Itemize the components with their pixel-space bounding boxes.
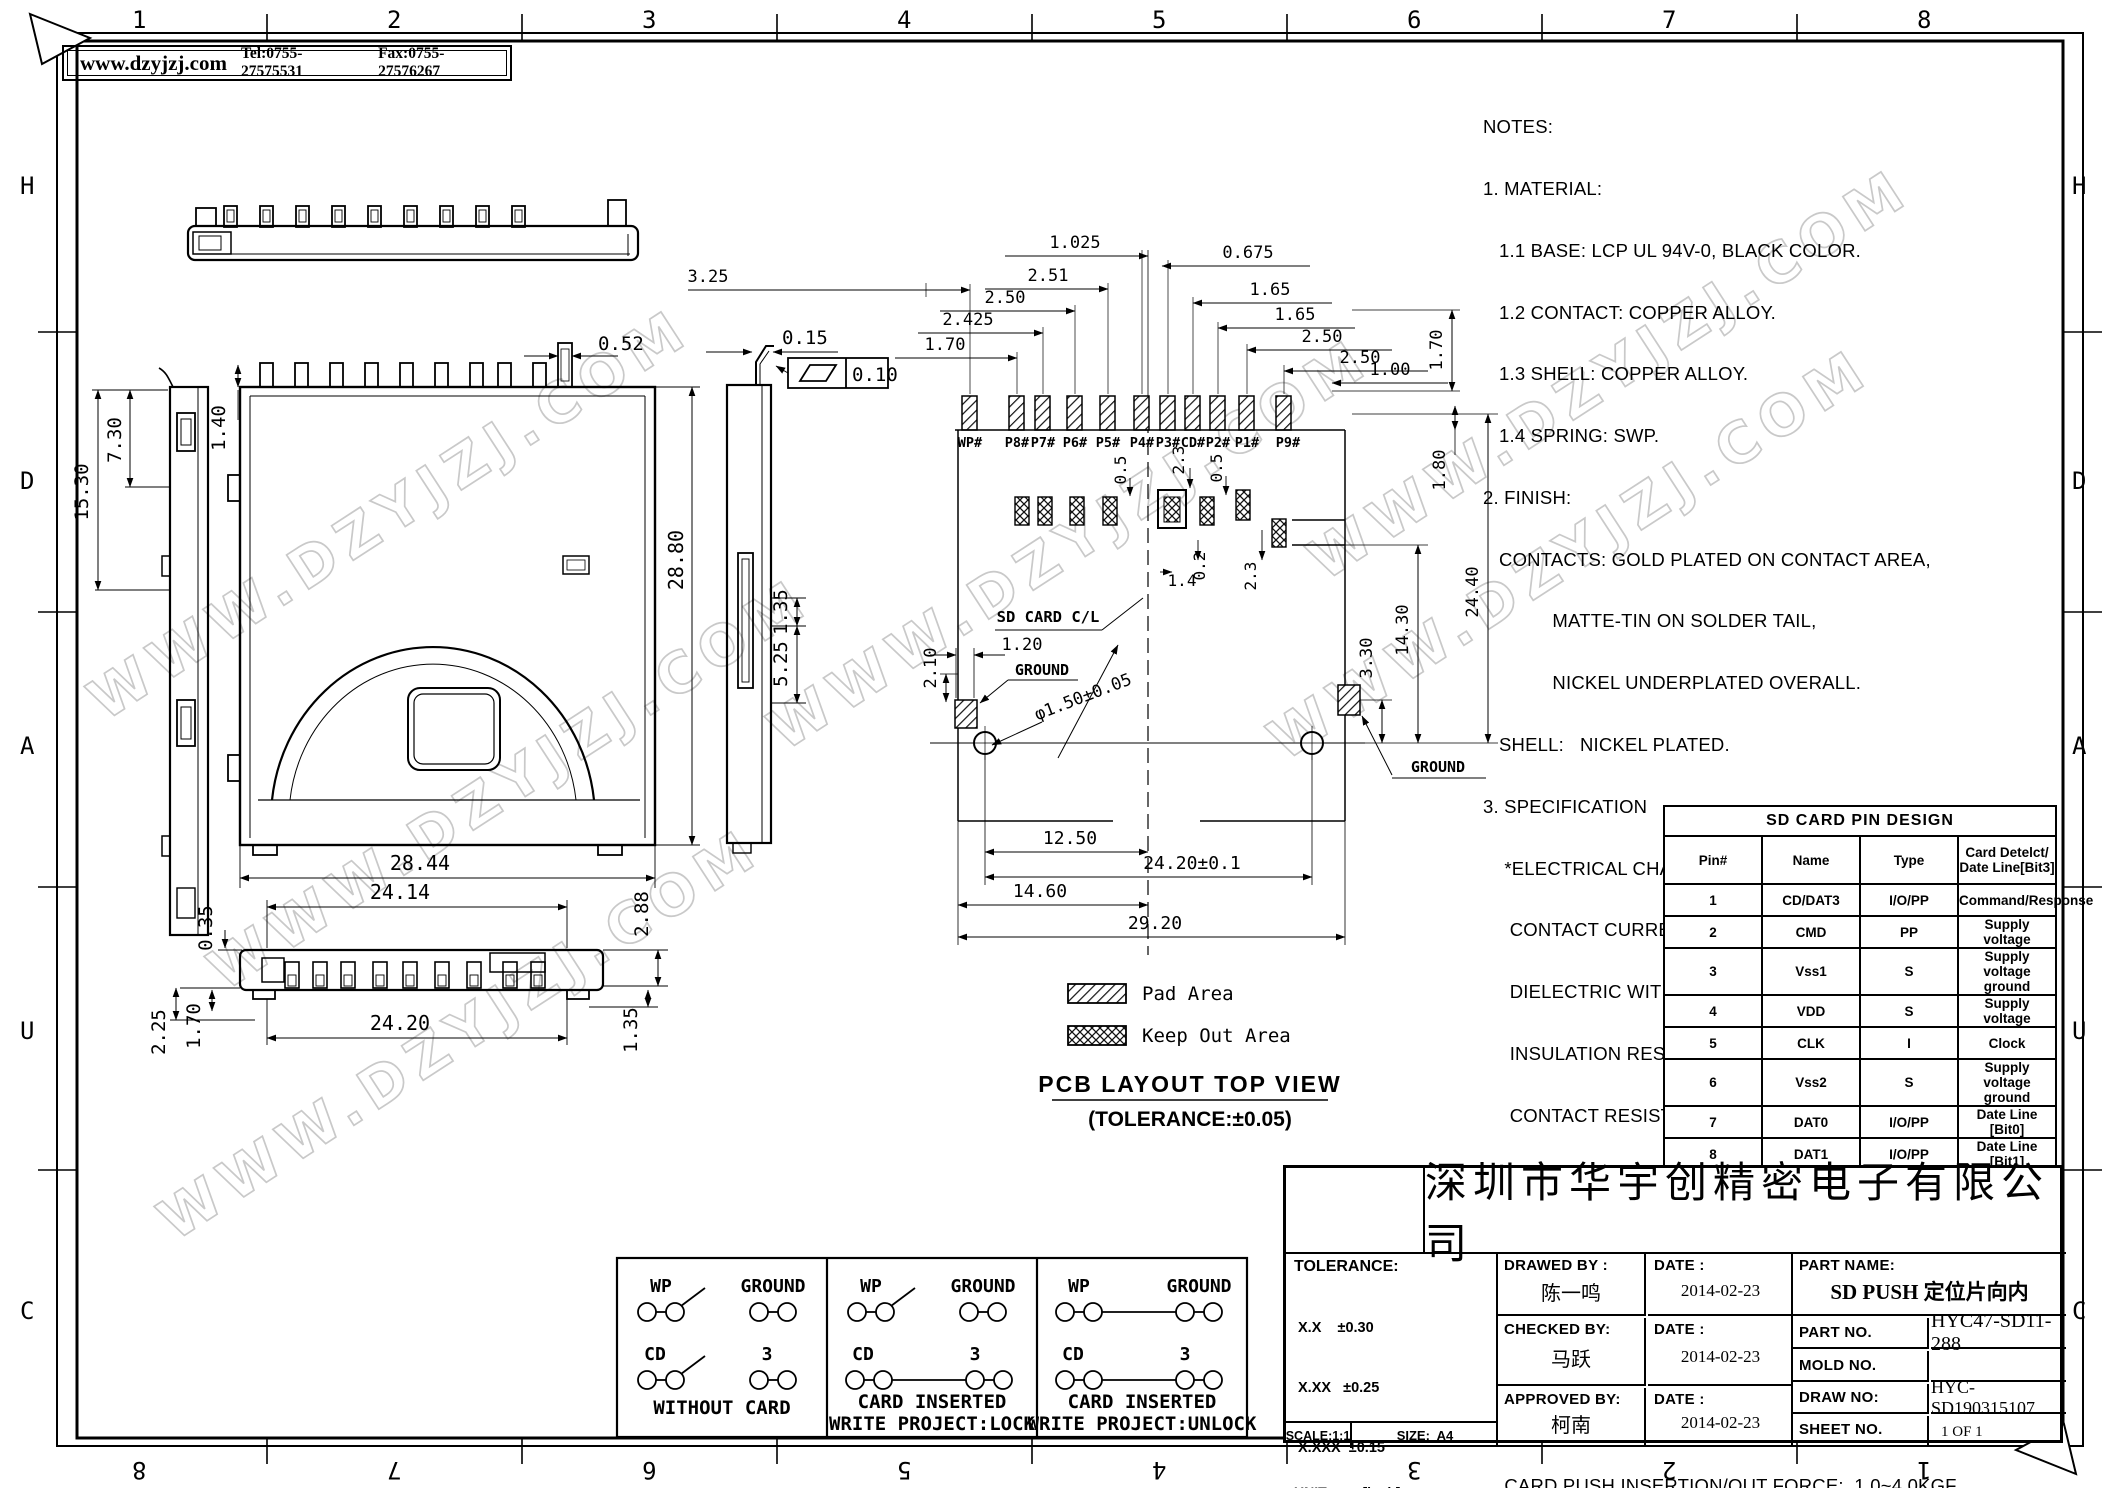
pin-number: 7 bbox=[1664, 1106, 1762, 1138]
pin-type: I bbox=[1860, 1027, 1958, 1059]
telephone: Tel:0755-27575531 bbox=[241, 45, 364, 81]
pin-number: 2 bbox=[1664, 916, 1762, 948]
dim-1-00: 1.00 bbox=[1370, 360, 1411, 380]
dim-7-30: 7.30 bbox=[104, 417, 126, 463]
zone-row: U bbox=[2072, 1017, 2086, 1045]
switch-caption: WITHOUT CARD bbox=[653, 1397, 790, 1419]
scale-row: SCALE:1:1 SIZE: A4 bbox=[1286, 1421, 1498, 1446]
pin-label: P2# bbox=[1206, 435, 1231, 451]
pin-name: DAT0 bbox=[1762, 1106, 1860, 1138]
note-line: CONTACTS: GOLD PLATED ON CONTACT AREA, bbox=[1483, 550, 2005, 571]
note-line: SHELL: NICKEL PLATED. bbox=[1483, 735, 2005, 756]
pin-type: S bbox=[1860, 948, 1958, 995]
pin-number: 6 bbox=[1664, 1059, 1762, 1106]
zone-col: 2 bbox=[387, 6, 401, 34]
dim-0-52: 0.52 bbox=[598, 333, 644, 355]
note-line: NOTES: bbox=[1483, 117, 2005, 138]
switch-cd-label: CD bbox=[644, 1344, 666, 1365]
pictorial-view bbox=[188, 200, 638, 260]
dim-0-35: 0.35 bbox=[195, 905, 217, 951]
dim-1-40: 1.40 bbox=[208, 405, 230, 451]
zone-row: U bbox=[20, 1017, 34, 1045]
zone-row: H bbox=[2072, 172, 2086, 200]
sheet-no-value: 1 OF 1 bbox=[1931, 1416, 2066, 1446]
date-label: DATE : bbox=[1648, 1388, 1793, 1408]
dim-0-5-a: 0.5 bbox=[1111, 456, 1130, 485]
dim-2-3-b: 2.3 bbox=[1241, 562, 1260, 591]
zone-col: 7 bbox=[387, 1456, 401, 1484]
dim-12-50: 12.50 bbox=[1043, 828, 1097, 849]
dim-5-25: 5.25 bbox=[770, 641, 792, 687]
dim-2-10: 2.10 bbox=[921, 648, 941, 689]
dim-1-20: 1.20 bbox=[1002, 635, 1043, 655]
draw-no-label: DRAW NO: bbox=[1793, 1384, 1927, 1406]
zone-col: 4 bbox=[897, 6, 911, 34]
zone-col: 5 bbox=[1152, 6, 1166, 34]
pin-label: P1# bbox=[1235, 435, 1260, 451]
dim-2-50-a: 2.50 bbox=[985, 288, 1026, 308]
note-line: 2. FINISH: bbox=[1483, 488, 2005, 509]
zone-col: 6 bbox=[1407, 6, 1421, 34]
dim-1-80: 1.80 bbox=[1430, 450, 1450, 491]
dim-14-30: 14.30 bbox=[1393, 604, 1413, 655]
zone-row: A bbox=[2072, 732, 2086, 760]
tolerance-line: X.XX ±0.25 bbox=[1298, 1378, 1496, 1398]
pcb-view-title: PCB LAYOUT TOP VIEW bbox=[1038, 1071, 1341, 1097]
dim-1-35-front: 1.35 bbox=[620, 1007, 642, 1053]
pin-table-header: Pin# bbox=[1664, 836, 1762, 884]
pin-desc: Supply voltage ground bbox=[1958, 1059, 2056, 1106]
pin-name: Vss1 bbox=[1762, 948, 1860, 995]
switch-wp-label: WP bbox=[860, 1276, 882, 1297]
zone-row: H bbox=[20, 172, 34, 200]
sd-card-cl-label: SD CARD C/L bbox=[997, 608, 1100, 626]
note-line: NICKEL UNDERPLATED OVERALL. bbox=[1483, 673, 2005, 694]
pin-label: P8# bbox=[1005, 435, 1030, 451]
dim-1-4: 1.4 bbox=[1168, 571, 1197, 590]
website-url[interactable]: www.dzyjzj.com bbox=[80, 51, 227, 76]
legend-pad-area: Pad Area bbox=[1142, 983, 1234, 1005]
drawed-date: 2014-02-23 bbox=[1648, 1274, 1793, 1308]
switch-caption: CARD INSERTED bbox=[858, 1391, 1007, 1413]
approved-date: 2014-02-23 bbox=[1648, 1408, 1793, 1438]
pin-name: Vss2 bbox=[1762, 1059, 1860, 1106]
mold-no-label: MOLD NO. bbox=[1793, 1351, 1927, 1374]
unit-label: UNIT: mm [inch] bbox=[1286, 1484, 1506, 1488]
dim-3-25: 3.25 bbox=[688, 267, 729, 287]
switch-3-label: 3 bbox=[762, 1344, 773, 1365]
flatness-value: 0.10 bbox=[852, 364, 898, 386]
note-line: 1.4 SPRING: SWP. bbox=[1483, 426, 2005, 447]
pin-table-header: Card Detelct/ Date Line[Bit3] bbox=[1958, 836, 2056, 884]
dim-24-20-tol: 24.20±0.1 bbox=[1143, 853, 1241, 874]
part-name-value: SD PUSH 定位片向内 bbox=[1793, 1274, 2066, 1308]
zone-row: D bbox=[20, 467, 34, 495]
part-no-value: HYC47-SD11-288 bbox=[1931, 1318, 2066, 1349]
zone-col: 1 bbox=[132, 6, 146, 34]
company-name: 深圳市华宇创精密电子有限公司 bbox=[1425, 1168, 2066, 1254]
pin-label: P6# bbox=[1063, 435, 1088, 451]
switch-ground-label: GROUND bbox=[740, 1276, 805, 1297]
logo-cell bbox=[1286, 1168, 1425, 1254]
zone-row: C bbox=[20, 1297, 34, 1325]
sheet-no-label: SHEET NO. bbox=[1793, 1416, 1927, 1438]
pin-label: P5# bbox=[1096, 435, 1121, 451]
tolerance-line: X.X ±0.30 bbox=[1298, 1318, 1496, 1338]
scale-value: SCALE:1:1 bbox=[1286, 1423, 1352, 1448]
zone-col: 6 bbox=[642, 1456, 656, 1484]
switch-3-label: 3 bbox=[1180, 1344, 1191, 1365]
pin-label: P4# bbox=[1130, 435, 1155, 451]
pin-label: P9# bbox=[1276, 435, 1301, 451]
dim-1-35: 1.35 bbox=[770, 589, 792, 635]
pin-table-header: Type bbox=[1860, 836, 1958, 884]
watermark-text: WWW.DZYJZJ.COM bbox=[147, 816, 773, 1254]
dim-0-15: 0.15 bbox=[782, 327, 828, 349]
pin-name: CLK bbox=[1762, 1027, 1860, 1059]
dim-28-44: 28.44 bbox=[390, 851, 450, 875]
ground-label-left: GROUND bbox=[1015, 661, 1069, 679]
legend-keep-out-area: Keep Out Area bbox=[1142, 1025, 1291, 1047]
pin-number: 3 bbox=[1664, 948, 1762, 995]
switch-cd-label: CD bbox=[852, 1344, 874, 1365]
pin-type: S bbox=[1860, 1059, 1958, 1106]
switch-wp-label: WP bbox=[1068, 1276, 1090, 1297]
note-line: CARD PUSH INSERTION/OUT FORCE: 1.0~4.0KG… bbox=[1483, 1476, 2005, 1488]
dim-2-88: 2.88 bbox=[631, 891, 653, 937]
dim-24-40: 24.40 bbox=[1463, 566, 1483, 617]
pin-label: P7# bbox=[1031, 435, 1056, 451]
dim-2-25: 2.25 bbox=[148, 1009, 170, 1055]
dim-1-65-b: 1.65 bbox=[1275, 305, 1316, 325]
pin-desc: Clock bbox=[1958, 1027, 2056, 1059]
dim-0-5-b: 0.5 bbox=[1207, 454, 1226, 483]
switch-caption: WRITE PROJECT:UNLOCK bbox=[1028, 1413, 1257, 1435]
zone-col: 7 bbox=[1662, 6, 1676, 34]
part-info-cell: PART NAME: SD PUSH 定位片向内 PART NO. HYC47-… bbox=[1793, 1254, 2066, 1446]
zone-col: 5 bbox=[897, 1456, 911, 1484]
pin-table-title: SD CARD PIN DESIGN bbox=[1664, 806, 2056, 836]
zone-col: 8 bbox=[132, 1456, 146, 1484]
pin-name: VDD bbox=[1762, 995, 1860, 1027]
checked-date: 2014-02-23 bbox=[1648, 1338, 1793, 1376]
zone-row: A bbox=[20, 732, 34, 760]
dim-1-025: 1.025 bbox=[1049, 233, 1100, 253]
approved-by-value: 柯南 bbox=[1498, 1408, 1644, 1438]
dim-1-65-a: 1.65 bbox=[1250, 280, 1291, 300]
dim-2-51: 2.51 bbox=[1028, 266, 1069, 286]
switch-ground-label: GROUND bbox=[950, 1276, 1015, 1297]
dim-1-70-front: 1.70 bbox=[183, 1003, 205, 1049]
part-no-label: PART NO. bbox=[1793, 1318, 1927, 1341]
dim-29-20: 29.20 bbox=[1128, 913, 1182, 934]
ground-label-right: GROUND bbox=[1411, 758, 1465, 776]
drawing-sheet: WWW.DZYJZJ.COM WWW.DZYJZJ.COM WWW.DZYJZJ… bbox=[0, 0, 2105, 1488]
date-label: DATE : bbox=[1648, 1254, 1793, 1274]
zone-col: 4 bbox=[1152, 1456, 1166, 1484]
note-line: MATTE-TIN ON SOLDER TAIL, bbox=[1483, 611, 2005, 632]
pcb-view-subtitle: (TOLERANCE:±0.05) bbox=[1088, 1108, 1292, 1131]
checked-by-label: CHECKED BY: bbox=[1498, 1318, 1644, 1338]
size-value: SIZE: A4 bbox=[1352, 1423, 1498, 1448]
switch-ground-label: GROUND bbox=[1166, 1276, 1231, 1297]
switch-caption: WRITE PROJECT:LOCK bbox=[829, 1413, 1035, 1435]
dim-15-30: 15.30 bbox=[71, 463, 93, 520]
pin-desc: Supply voltage bbox=[1958, 995, 2056, 1027]
note-line: 1.3 SHELL: COPPER ALLOY. bbox=[1483, 364, 2005, 385]
zone-row: C bbox=[2072, 1297, 2086, 1325]
draw-no-value: HYC-SD190315107 bbox=[1931, 1384, 2066, 1414]
checked-by-value: 马跃 bbox=[1498, 1338, 1644, 1376]
note-line: 1. MATERIAL: bbox=[1483, 179, 2005, 200]
switch-caption: CARD INSERTED bbox=[1068, 1391, 1217, 1413]
drawed-by-value: 陈一鸣 bbox=[1498, 1274, 1644, 1308]
pin-name: CMD bbox=[1762, 916, 1860, 948]
pin-desc: Supply voltage ground bbox=[1958, 948, 2056, 995]
dim-14-60: 14.60 bbox=[1013, 881, 1067, 902]
title-block: 深圳市华宇创精密电子有限公司 TOLERANCE: X.X ±0.30 X.XX… bbox=[1283, 1165, 2063, 1443]
pin-desc: Date Line [Bit0] bbox=[1958, 1106, 2056, 1138]
pin-type: I/O/PP bbox=[1860, 1106, 1958, 1138]
dim-1-70-vert: 1.70 bbox=[1427, 330, 1447, 371]
pin-label: WP# bbox=[958, 435, 983, 451]
pin-number: 4 bbox=[1664, 995, 1762, 1027]
pin-name: CD/DAT3 bbox=[1762, 884, 1860, 916]
switch-diagram-text: WP GROUND CD 3 WP GROUND CD 3 WP GROUND … bbox=[644, 1276, 1257, 1435]
fax: Fax:0755-27576267 bbox=[378, 45, 506, 81]
zone-row: D bbox=[2072, 467, 2086, 495]
tolerance-cell: TOLERANCE: X.X ±0.30 X.XX ±0.25 X.XXX ±0… bbox=[1286, 1254, 1498, 1446]
switch-wp-label: WP bbox=[650, 1276, 672, 1297]
switch-cd-label: CD bbox=[1062, 1344, 1084, 1365]
dim-3-30: 3.30 bbox=[1357, 638, 1377, 679]
drawed-by-label: DRAWED BY : bbox=[1498, 1254, 1644, 1274]
pin-desc: Supply voltage bbox=[1958, 916, 2056, 948]
switch-3-label: 3 bbox=[970, 1344, 981, 1365]
sd-card-pin-table: SD CARD PIN DESIGN Pin# Name Type Card D… bbox=[1663, 805, 2057, 1203]
dim-1-70-chain: 1.70 bbox=[925, 335, 966, 355]
watermark-text: WWW.DZYJZJ.COM bbox=[197, 566, 823, 1004]
dim-2-3-a: 2.3 bbox=[1169, 446, 1188, 475]
note-line: 1.1 BASE: LCP UL 94V-0, BLACK COLOR. bbox=[1483, 241, 2005, 262]
dim-28-80: 28.80 bbox=[664, 530, 688, 590]
approved-by-label: APPROVED BY: bbox=[1498, 1388, 1644, 1408]
note-line: 1.2 CONTACT: COPPER ALLOY. bbox=[1483, 303, 2005, 324]
signature-cell: DRAWED BY : 陈一鸣 DATE : 2014-02-23 CHECKE… bbox=[1498, 1254, 1793, 1446]
date-label: DATE : bbox=[1648, 1318, 1793, 1338]
tolerance-title: TOLERANCE: bbox=[1286, 1254, 1496, 1278]
pin-desc: Command/Response bbox=[1958, 884, 2056, 916]
dim-24-20: 24.20 bbox=[370, 1011, 430, 1035]
zone-col: 8 bbox=[1917, 6, 1931, 34]
pin-number: 5 bbox=[1664, 1027, 1762, 1059]
pin-number: 1 bbox=[1664, 884, 1762, 916]
pin-type: I/O/PP bbox=[1860, 884, 1958, 916]
dim-2-50-b: 2.50 bbox=[1302, 327, 1343, 347]
header-contact-bar: www.dzyjzj.com Tel:0755-27575531 Fax:075… bbox=[62, 45, 512, 81]
pin-table-header: Name bbox=[1762, 836, 1860, 884]
pin-type: PP bbox=[1860, 916, 1958, 948]
dim-0-675: 0.675 bbox=[1222, 243, 1273, 263]
dim-2-425: 2.425 bbox=[942, 310, 993, 330]
pin-type: S bbox=[1860, 995, 1958, 1027]
zone-col: 3 bbox=[642, 6, 656, 34]
part-name-label: PART NAME: bbox=[1793, 1254, 2066, 1274]
dim-24-14: 24.14 bbox=[370, 880, 430, 904]
